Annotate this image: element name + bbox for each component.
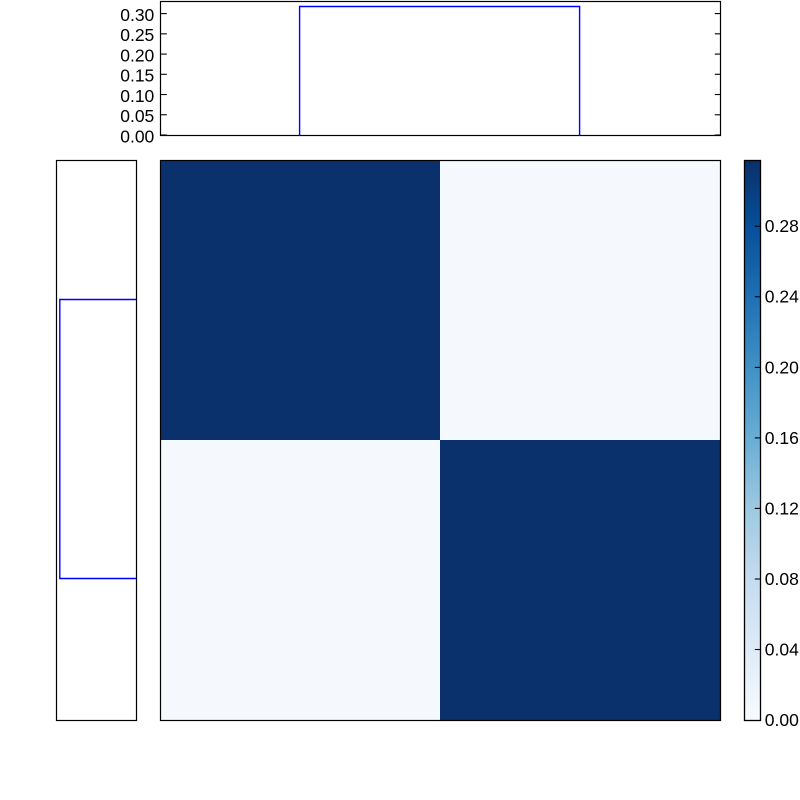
svg-text:0.30: 0.30	[120, 5, 154, 25]
svg-text:0.10: 0.10	[120, 86, 154, 106]
svg-text:0.20: 0.20	[120, 46, 154, 66]
svg-text:0.24: 0.24	[765, 287, 799, 307]
svg-text:0.00: 0.00	[120, 126, 154, 146]
svg-text:0.08: 0.08	[765, 569, 799, 589]
svg-text:0.00: 0.00	[765, 710, 799, 730]
svg-text:0.15: 0.15	[120, 66, 154, 86]
svg-text:0.12: 0.12	[765, 498, 799, 518]
svg-text:0.20: 0.20	[765, 357, 799, 377]
svg-text:0.16: 0.16	[765, 428, 799, 448]
svg-text:0.28: 0.28	[765, 216, 799, 236]
svg-text:0.04: 0.04	[765, 639, 799, 659]
svg-text:0.25: 0.25	[120, 25, 154, 45]
svg-text:0.05: 0.05	[120, 106, 154, 126]
